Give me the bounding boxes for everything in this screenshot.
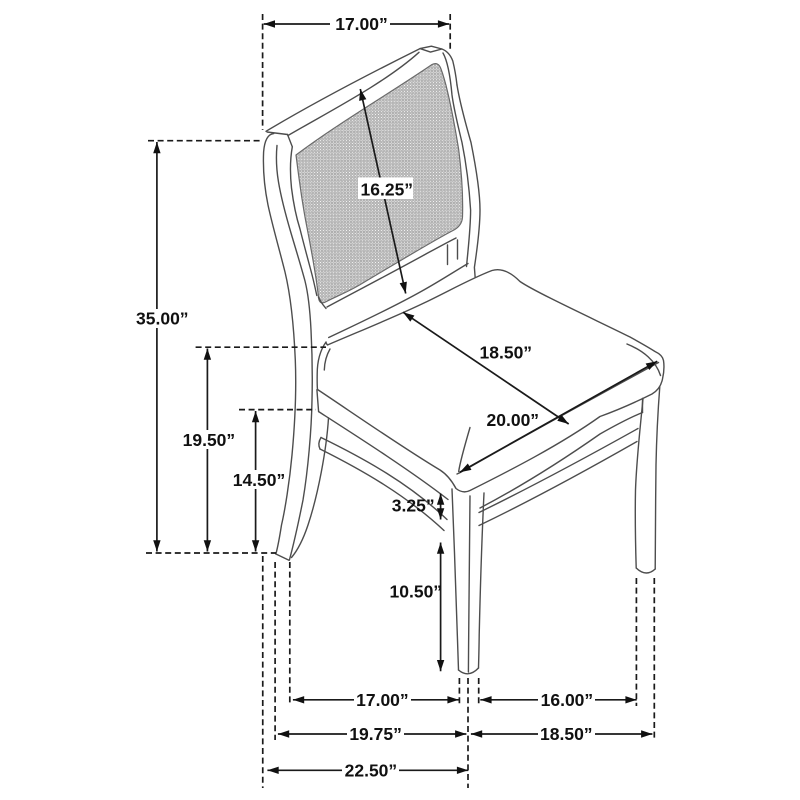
svg-text:17.00”: 17.00” bbox=[356, 690, 409, 710]
svg-text:16.00”: 16.00” bbox=[541, 690, 594, 710]
svg-text:19.75”: 19.75” bbox=[349, 724, 402, 744]
svg-text:20.00”: 20.00” bbox=[487, 410, 540, 430]
svg-text:18.50”: 18.50” bbox=[540, 724, 593, 744]
svg-text:18.50”: 18.50” bbox=[480, 343, 533, 363]
svg-text:16.25”: 16.25” bbox=[361, 180, 414, 200]
svg-text:3.25”: 3.25” bbox=[392, 496, 435, 516]
svg-text:35.00”: 35.00” bbox=[136, 309, 189, 329]
svg-text:22.50”: 22.50” bbox=[345, 761, 398, 781]
svg-text:14.50”: 14.50” bbox=[233, 470, 286, 490]
svg-text:19.50”: 19.50” bbox=[183, 430, 236, 450]
svg-text:17.00”: 17.00” bbox=[335, 14, 388, 34]
svg-text:10.50”: 10.50” bbox=[390, 582, 443, 602]
